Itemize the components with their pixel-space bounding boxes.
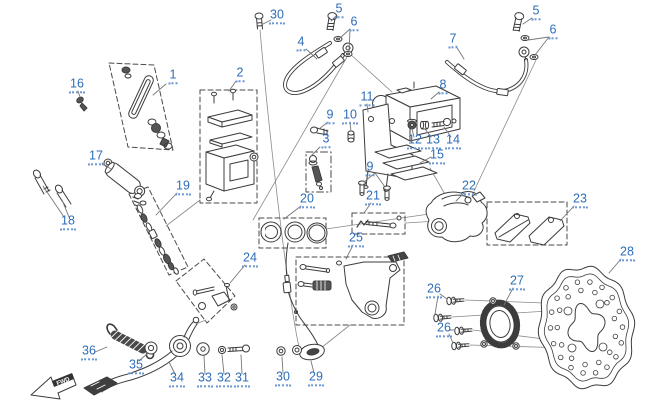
pivot-washer (145, 342, 157, 354)
callout-part-2[interactable]: 2 (236, 66, 245, 82)
speed-sensor (283, 243, 326, 362)
pedal-bolt (228, 345, 250, 352)
exploded-view-drawing: FWD (0, 0, 650, 415)
caliper-bracket-kit (298, 252, 408, 318)
callout-part-34[interactable]: 34 (169, 371, 185, 387)
callout-part-28[interactable]: 28 (619, 245, 635, 261)
spacer-collar (348, 131, 354, 142)
callout-part-9-lower[interactable]: 9 (366, 160, 375, 176)
return-spring (107, 324, 153, 358)
callout-part-31[interactable]: 31 (234, 371, 250, 387)
banjo-bolt-rear (512, 12, 525, 32)
callout-part-7[interactable]: 7 (449, 32, 458, 48)
callout-part-27[interactable]: 27 (509, 274, 525, 290)
brake-caliper (426, 192, 487, 242)
callout-part-22[interactable]: 22 (461, 179, 477, 195)
clevis-kit (193, 284, 237, 311)
callout-part-9-upper[interactable]: 9 (326, 108, 335, 124)
reservoir-hose-kit (122, 67, 172, 149)
callout-part-23[interactable]: 23 (572, 192, 588, 208)
callout-part-12[interactable]: 12 (407, 133, 423, 149)
sensor-mount-bolt-top (255, 13, 263, 29)
reservoir-assembly (206, 89, 258, 201)
callout-part-19[interactable]: 19 (175, 179, 191, 195)
callout-part-30-bottom[interactable]: 30 (275, 370, 291, 386)
callout-part-5-left[interactable]: 5 (335, 2, 344, 18)
callout-part-10[interactable]: 10 (342, 108, 358, 124)
fwd-direction-arrow: FWD (31, 373, 76, 399)
callout-part-29[interactable]: 29 (308, 370, 324, 386)
callout-part-20[interactable]: 20 (299, 192, 315, 208)
sensor-bolt (277, 347, 285, 355)
pedal-washer-large (197, 343, 209, 355)
callout-part-26-lower[interactable]: 26 (436, 321, 452, 337)
pad-pin-kit (357, 216, 401, 228)
parts-diagram-canvas: FWD (0, 0, 650, 415)
reservoir-screw (76, 96, 87, 111)
caliper-piston-seals (261, 222, 327, 243)
box-part-19 (129, 187, 188, 275)
callout-part-3[interactable]: 3 (322, 132, 331, 148)
callout-part-15[interactable]: 15 (429, 148, 445, 164)
callout-part-21[interactable]: 21 (365, 189, 381, 205)
callout-part-5-right[interactable]: 5 (532, 4, 541, 20)
brake-hose-rear (447, 47, 529, 96)
mounting-bolts (32, 169, 71, 207)
callout-part-26-upper[interactable]: 26 (426, 282, 442, 298)
callout-part-25[interactable]: 25 (348, 231, 364, 247)
brake-disc-generated (538, 266, 634, 388)
brake-pads (495, 214, 564, 246)
callout-part-16[interactable]: 16 (69, 77, 85, 93)
callout-part-33[interactable]: 33 (197, 371, 213, 387)
bleeder-valve (309, 156, 323, 190)
callout-part-32[interactable]: 32 (216, 371, 232, 387)
callout-part-24[interactable]: 24 (242, 251, 258, 267)
callout-part-1[interactable]: 1 (169, 68, 178, 84)
collar-washer (420, 121, 428, 129)
callout-part-18[interactable]: 18 (60, 214, 76, 230)
callout-part-17[interactable]: 17 (88, 149, 104, 165)
callout-part-8[interactable]: 8 (439, 78, 448, 94)
rear-master-cylinder (103, 159, 148, 205)
callout-part-11[interactable]: 11 (360, 90, 375, 106)
callout-part-14[interactable]: 14 (445, 133, 461, 149)
callout-part-30-top[interactable]: 30 (269, 8, 285, 24)
callout-part-36[interactable]: 36 (81, 344, 97, 360)
pedal-washer-small (218, 346, 225, 353)
abs-tone-ring (480, 298, 520, 349)
brake-hose-front (285, 43, 353, 93)
grommet (408, 119, 417, 129)
callout-part-35[interactable]: 35 (128, 358, 144, 374)
callout-part-6-left[interactable]: 6 (350, 15, 359, 31)
callout-part-4[interactable]: 4 (297, 35, 306, 51)
callout-part-6-right[interactable]: 6 (549, 23, 558, 39)
